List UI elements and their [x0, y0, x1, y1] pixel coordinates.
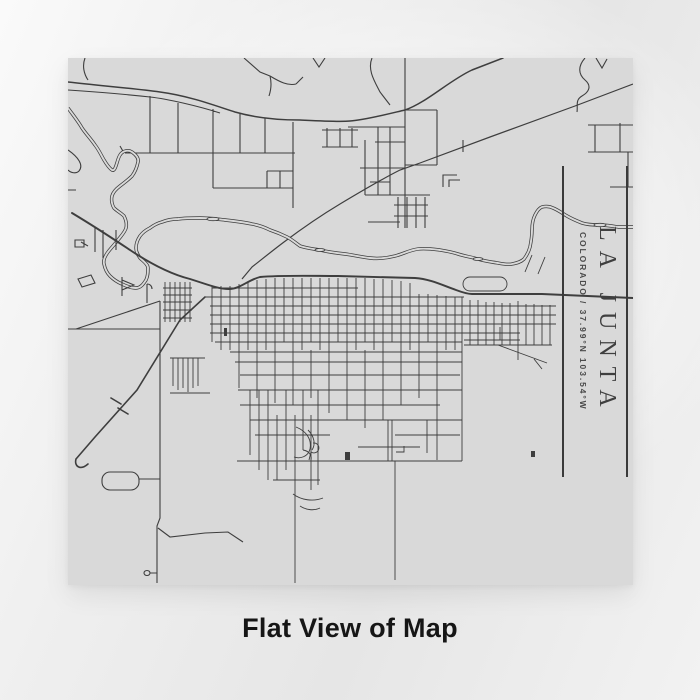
small-loop: [144, 571, 150, 576]
building-marker: [531, 451, 535, 457]
river-braid-island: [473, 258, 483, 261]
rural-roads-north: [68, 58, 633, 228]
river-braid-island: [207, 217, 219, 220]
rural-roads-west: [68, 190, 243, 583]
panel-rule-right: [626, 166, 628, 477]
oxbow-scar: [68, 150, 81, 173]
building-marker: [345, 452, 350, 460]
pond-loop: [102, 472, 139, 490]
building-markers: [224, 328, 535, 460]
highway-north: [68, 58, 503, 121]
street-grid: [163, 255, 556, 583]
panel-rule-left: [562, 166, 564, 477]
map-subtitle: COLORADO / 37.99°N 103.54°W: [578, 166, 588, 477]
map-title: LA JUNTA: [593, 166, 620, 477]
river-braid-island: [315, 249, 325, 252]
ballpark-loop: [463, 277, 507, 291]
caption: Flat View of Map: [0, 610, 700, 646]
panel-text: LA JUNTA COLORADO / 37.99°N 103.54°W: [566, 166, 620, 477]
building-marker: [224, 328, 227, 336]
map-graphic: [68, 58, 633, 585]
title-panel: LA JUNTA COLORADO / 37.99°N 103.54°W: [562, 166, 628, 477]
map-print: LA JUNTA COLORADO / 37.99°N 103.54°W: [68, 58, 633, 585]
